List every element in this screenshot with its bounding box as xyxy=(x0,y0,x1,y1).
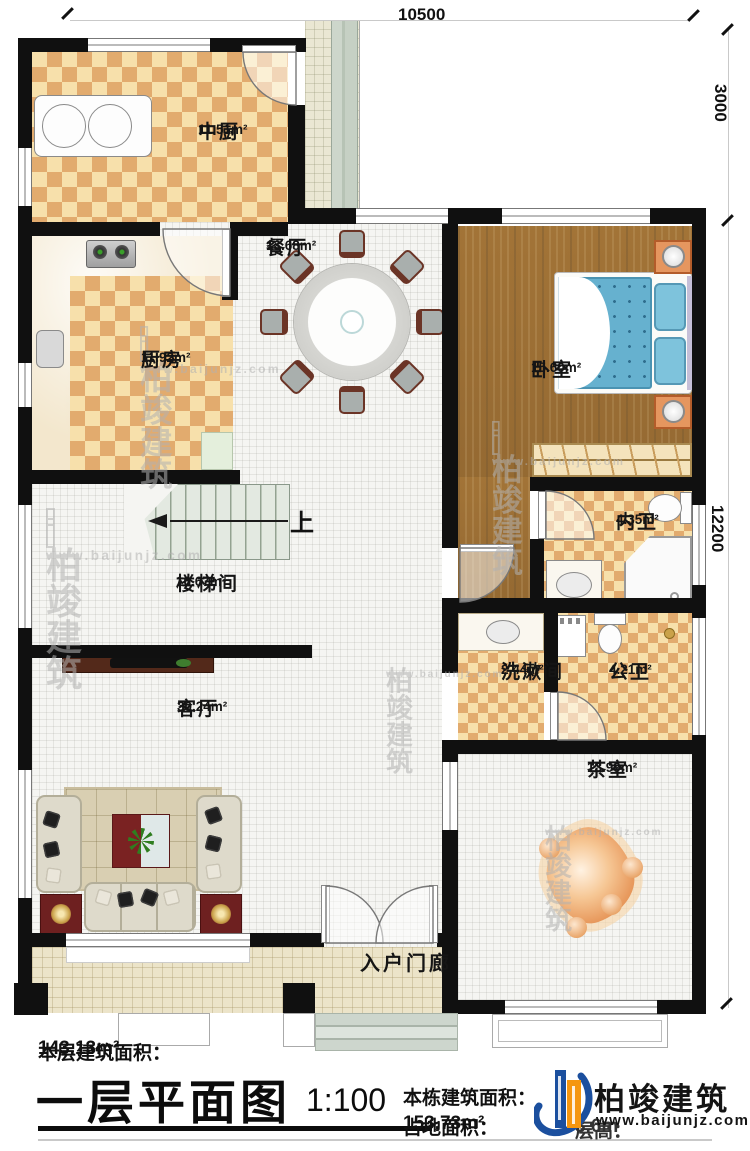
entry-step xyxy=(315,1039,458,1051)
entry-step xyxy=(315,1013,458,1026)
title-underline xyxy=(38,1126,432,1131)
entry-door-arc xyxy=(326,886,383,943)
company-website: www.baijunjz.com xyxy=(596,1112,749,1129)
sheet-scale: 1:100 xyxy=(306,1082,386,1119)
sheet-title: 一层平面图 xyxy=(36,1064,291,1133)
door-arc xyxy=(546,491,594,539)
stairs-up-label: 上 xyxy=(290,503,314,538)
dimension-height-lower: 12200 xyxy=(707,505,727,552)
floor-area-value: 143.13m² xyxy=(38,1038,119,1060)
door-arc xyxy=(460,548,514,602)
door-arc xyxy=(243,52,296,105)
door-arc xyxy=(558,692,606,740)
bay-window-outline xyxy=(492,1014,668,1048)
dimension-line xyxy=(728,30,729,1008)
dimension-line xyxy=(70,20,690,21)
door-swing-overlay xyxy=(0,0,750,1151)
step-landing xyxy=(283,1013,315,1047)
dimension-height-upper: 3000 xyxy=(710,84,730,122)
building-area-label: 本栋建筑面积： xyxy=(403,1083,536,1110)
bay-window-inner xyxy=(498,1020,662,1042)
site-area-value: 153.73m² xyxy=(403,1113,484,1135)
floor-plan: 柏竣建筑www.baijunjz.com 柏竣建筑www.baijunjz.co… xyxy=(0,0,750,1151)
company-logo-icon xyxy=(534,1064,594,1146)
door-arc xyxy=(163,229,230,296)
entry-door-arc xyxy=(376,886,433,943)
entry-step xyxy=(315,1026,458,1039)
dimension-width: 10500 xyxy=(398,5,445,25)
